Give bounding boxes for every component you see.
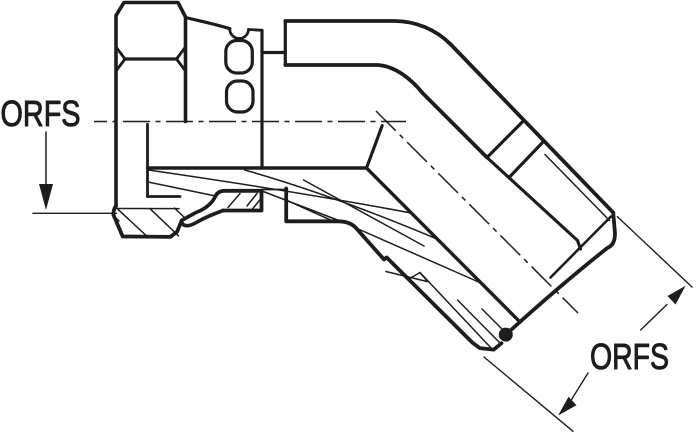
svg-text:ORFS: ORFS (1, 93, 81, 134)
svg-text:ORFS: ORFS (590, 336, 669, 377)
